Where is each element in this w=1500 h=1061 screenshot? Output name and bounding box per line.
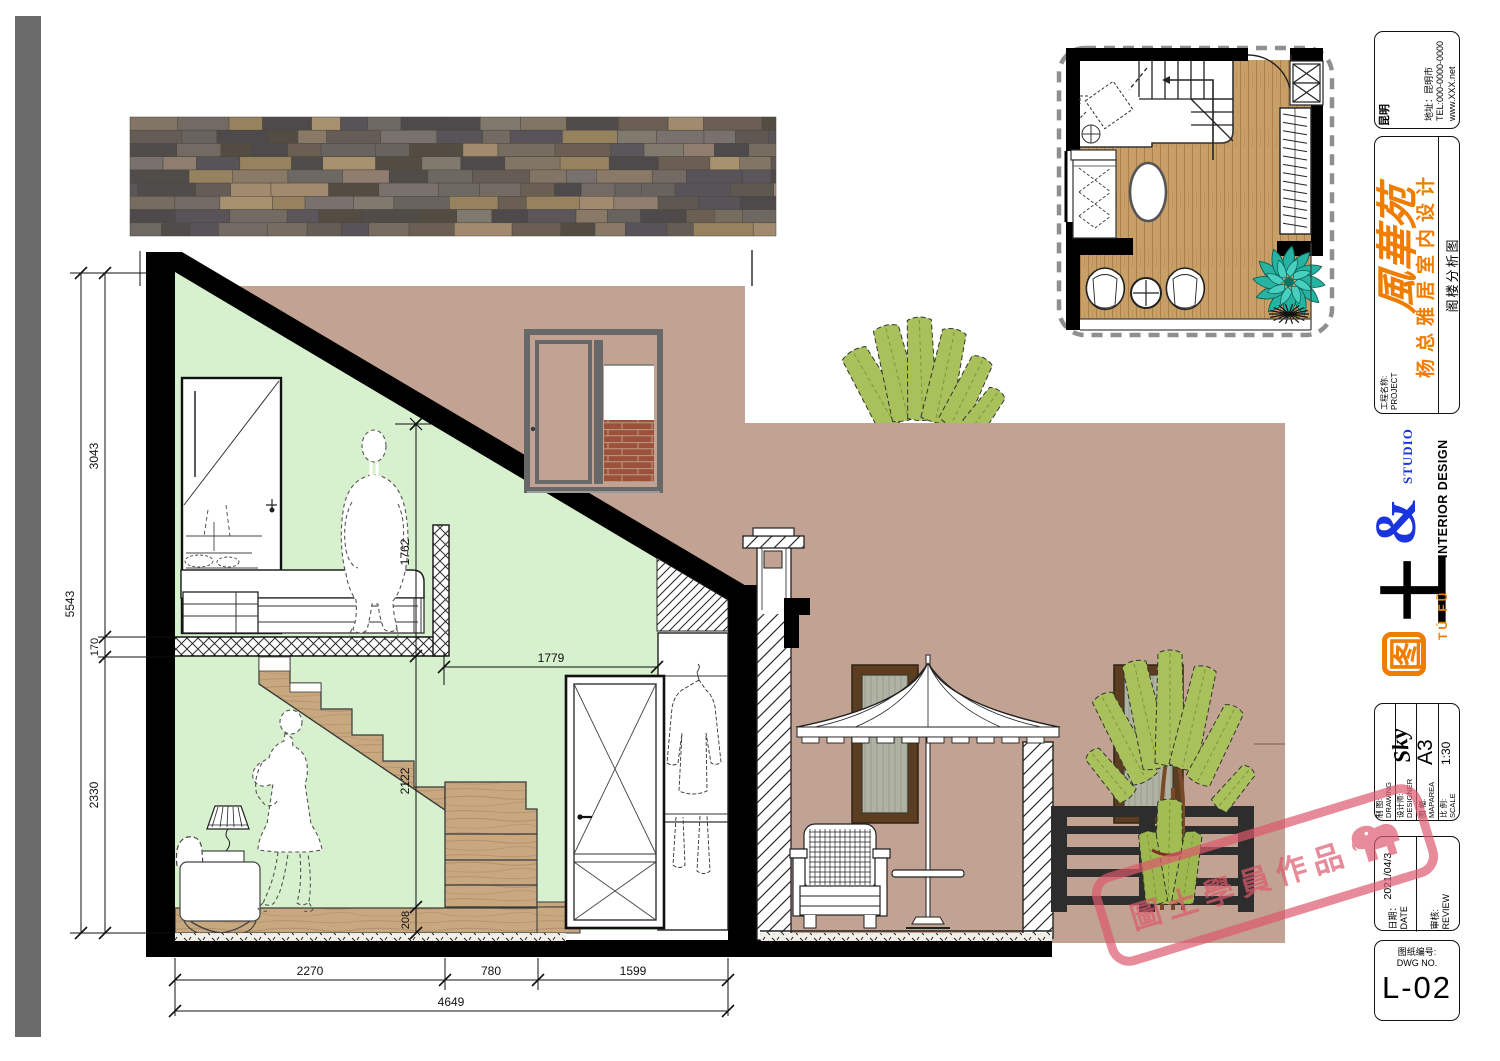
svg-text:170: 170: [89, 638, 101, 656]
svg-text:5543: 5543: [63, 590, 77, 617]
svg-text:1762: 1762: [398, 538, 412, 565]
svg-text:2122: 2122: [398, 767, 412, 794]
svg-text:1599: 1599: [620, 964, 647, 978]
svg-text:4649: 4649: [438, 995, 465, 1009]
svg-text:3043: 3043: [87, 442, 101, 469]
svg-text:2270: 2270: [297, 964, 324, 978]
svg-text:780: 780: [481, 964, 501, 978]
svg-text:208: 208: [400, 911, 412, 929]
svg-text:1779: 1779: [538, 651, 565, 665]
svg-text:2330: 2330: [87, 781, 101, 808]
